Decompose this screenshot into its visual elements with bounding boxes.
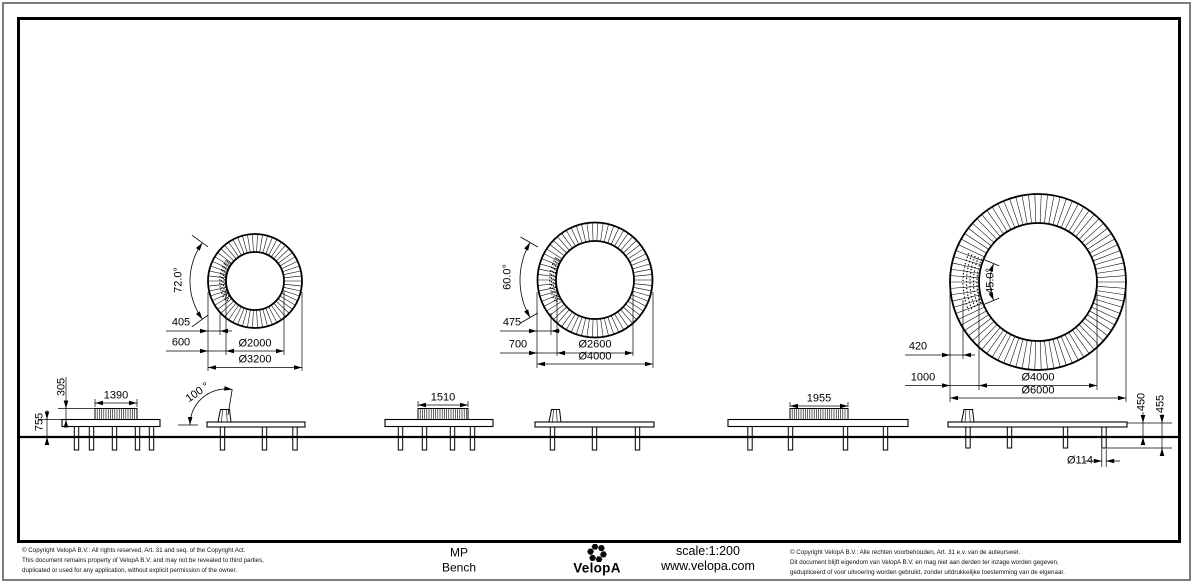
dim-label-ring3-angle: 45.0°: [986, 268, 997, 294]
velopa-logo-icon: [583, 544, 611, 562]
dim-label-seat-width-2: 1510: [431, 393, 455, 404]
dim-label-ring2-angle: 60.0°: [503, 264, 514, 290]
copyright-block-nl: © Copyright VelopA B.V.: Alle rechten vo…: [790, 548, 1065, 577]
dim-label-backrest-height: 305: [57, 378, 68, 396]
logo-hexagon: [600, 551, 607, 557]
logo-hexagon: [587, 549, 594, 555]
copyright-nl-line3: gedupliceerd of voor uitvoering worden g…: [790, 568, 1065, 578]
logo-hexagon: [598, 545, 605, 551]
title-product-line: MP: [450, 547, 468, 560]
technical-drawing-canvas: [0, 0, 1197, 587]
copyright-en-line3: duplicated or used for any application, …: [22, 566, 264, 576]
website-url: www.velopa.com: [661, 559, 755, 573]
brand-name: VelopA: [573, 561, 621, 576]
dim-label-seat-height: 450: [1137, 393, 1148, 411]
title-product-type: Bench: [442, 562, 476, 575]
logo-hexagon: [592, 544, 599, 550]
dim-label-leg-diameter: Ø114: [1067, 456, 1093, 467]
dim-label-ring2-inner-dia: Ø2600: [578, 340, 611, 351]
dim-label-ring3-width: 1000: [911, 373, 935, 384]
dim-label-ring1-seat-offset: 405: [172, 318, 190, 329]
dim-label-ring2-outer-dia: Ø4000: [578, 352, 611, 363]
dim-label-ring1-angle: 72.0°: [174, 267, 185, 293]
copyright-block-en: © Copyright VelopA B.V.: All rights rese…: [22, 546, 264, 575]
copyright-en-line1: © Copyright VelopA B.V.: All rights rese…: [22, 546, 264, 556]
dim-label-ring1-outer-dia: Ø3200: [238, 355, 271, 366]
dim-label-ring2-seat-offset: 475: [503, 318, 521, 329]
copyright-en-line2: This document remains property of VelopA…: [22, 556, 264, 566]
plan-view-ring-1: [166, 234, 302, 371]
dim-label-seat-width-1: 1390: [104, 391, 128, 402]
dim-label-ring3-seat-offset: 420: [909, 342, 927, 353]
dim-label-ring2-width: 700: [509, 340, 527, 351]
drawing-scale: scale:1:200: [676, 544, 740, 558]
dim-label-ring1-width: 600: [172, 338, 190, 349]
dim-label-seat-height-alt: 455: [1156, 395, 1167, 413]
plan-view-ring-3: [905, 194, 1126, 402]
dim-label-ring3-outer-dia: Ø6000: [1021, 386, 1054, 397]
dim-label-seat-width-3: 1955: [807, 394, 831, 405]
dim-label-overall-height: 755: [35, 413, 46, 431]
dim-label-ring3-inner-dia: Ø4000: [1021, 373, 1054, 384]
drawing-sheet: 72.0° 405 600 Ø2000 Ø3200 60.0° 475 700 …: [0, 0, 1197, 587]
dim-label-ring1-inner-dia: Ø2000: [238, 339, 271, 350]
copyright-nl-line2: Dit document blijft eigendom van VelopA …: [790, 558, 1065, 568]
copyright-nl-line1: © Copyright VelopA B.V.: Alle rechten vo…: [790, 548, 1065, 558]
